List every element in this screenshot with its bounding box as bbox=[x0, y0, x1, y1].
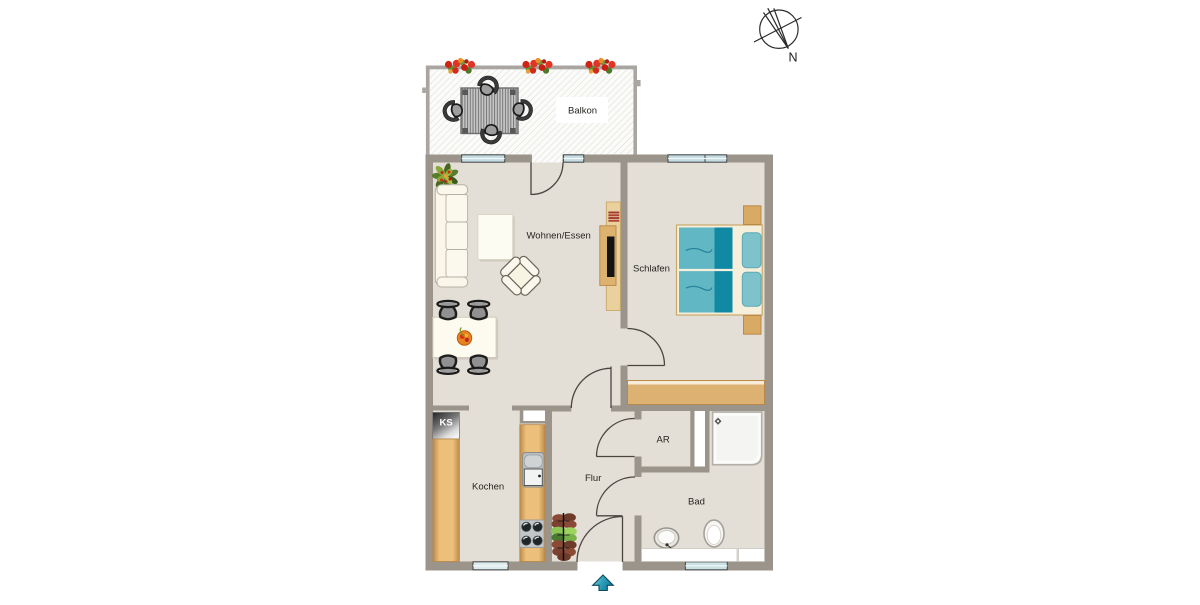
svg-text:Wohnen/Essen: Wohnen/Essen bbox=[527, 231, 591, 242]
svg-text:Bad: Bad bbox=[688, 496, 705, 507]
svg-text:Schlafen: Schlafen bbox=[633, 264, 670, 275]
svg-text:Balkon: Balkon bbox=[568, 106, 597, 117]
svg-text:KS: KS bbox=[440, 418, 453, 429]
svg-text:AR: AR bbox=[657, 435, 670, 446]
svg-text:Kochen: Kochen bbox=[472, 481, 504, 492]
svg-text:N: N bbox=[789, 51, 798, 65]
svg-text:Flur: Flur bbox=[585, 473, 601, 484]
